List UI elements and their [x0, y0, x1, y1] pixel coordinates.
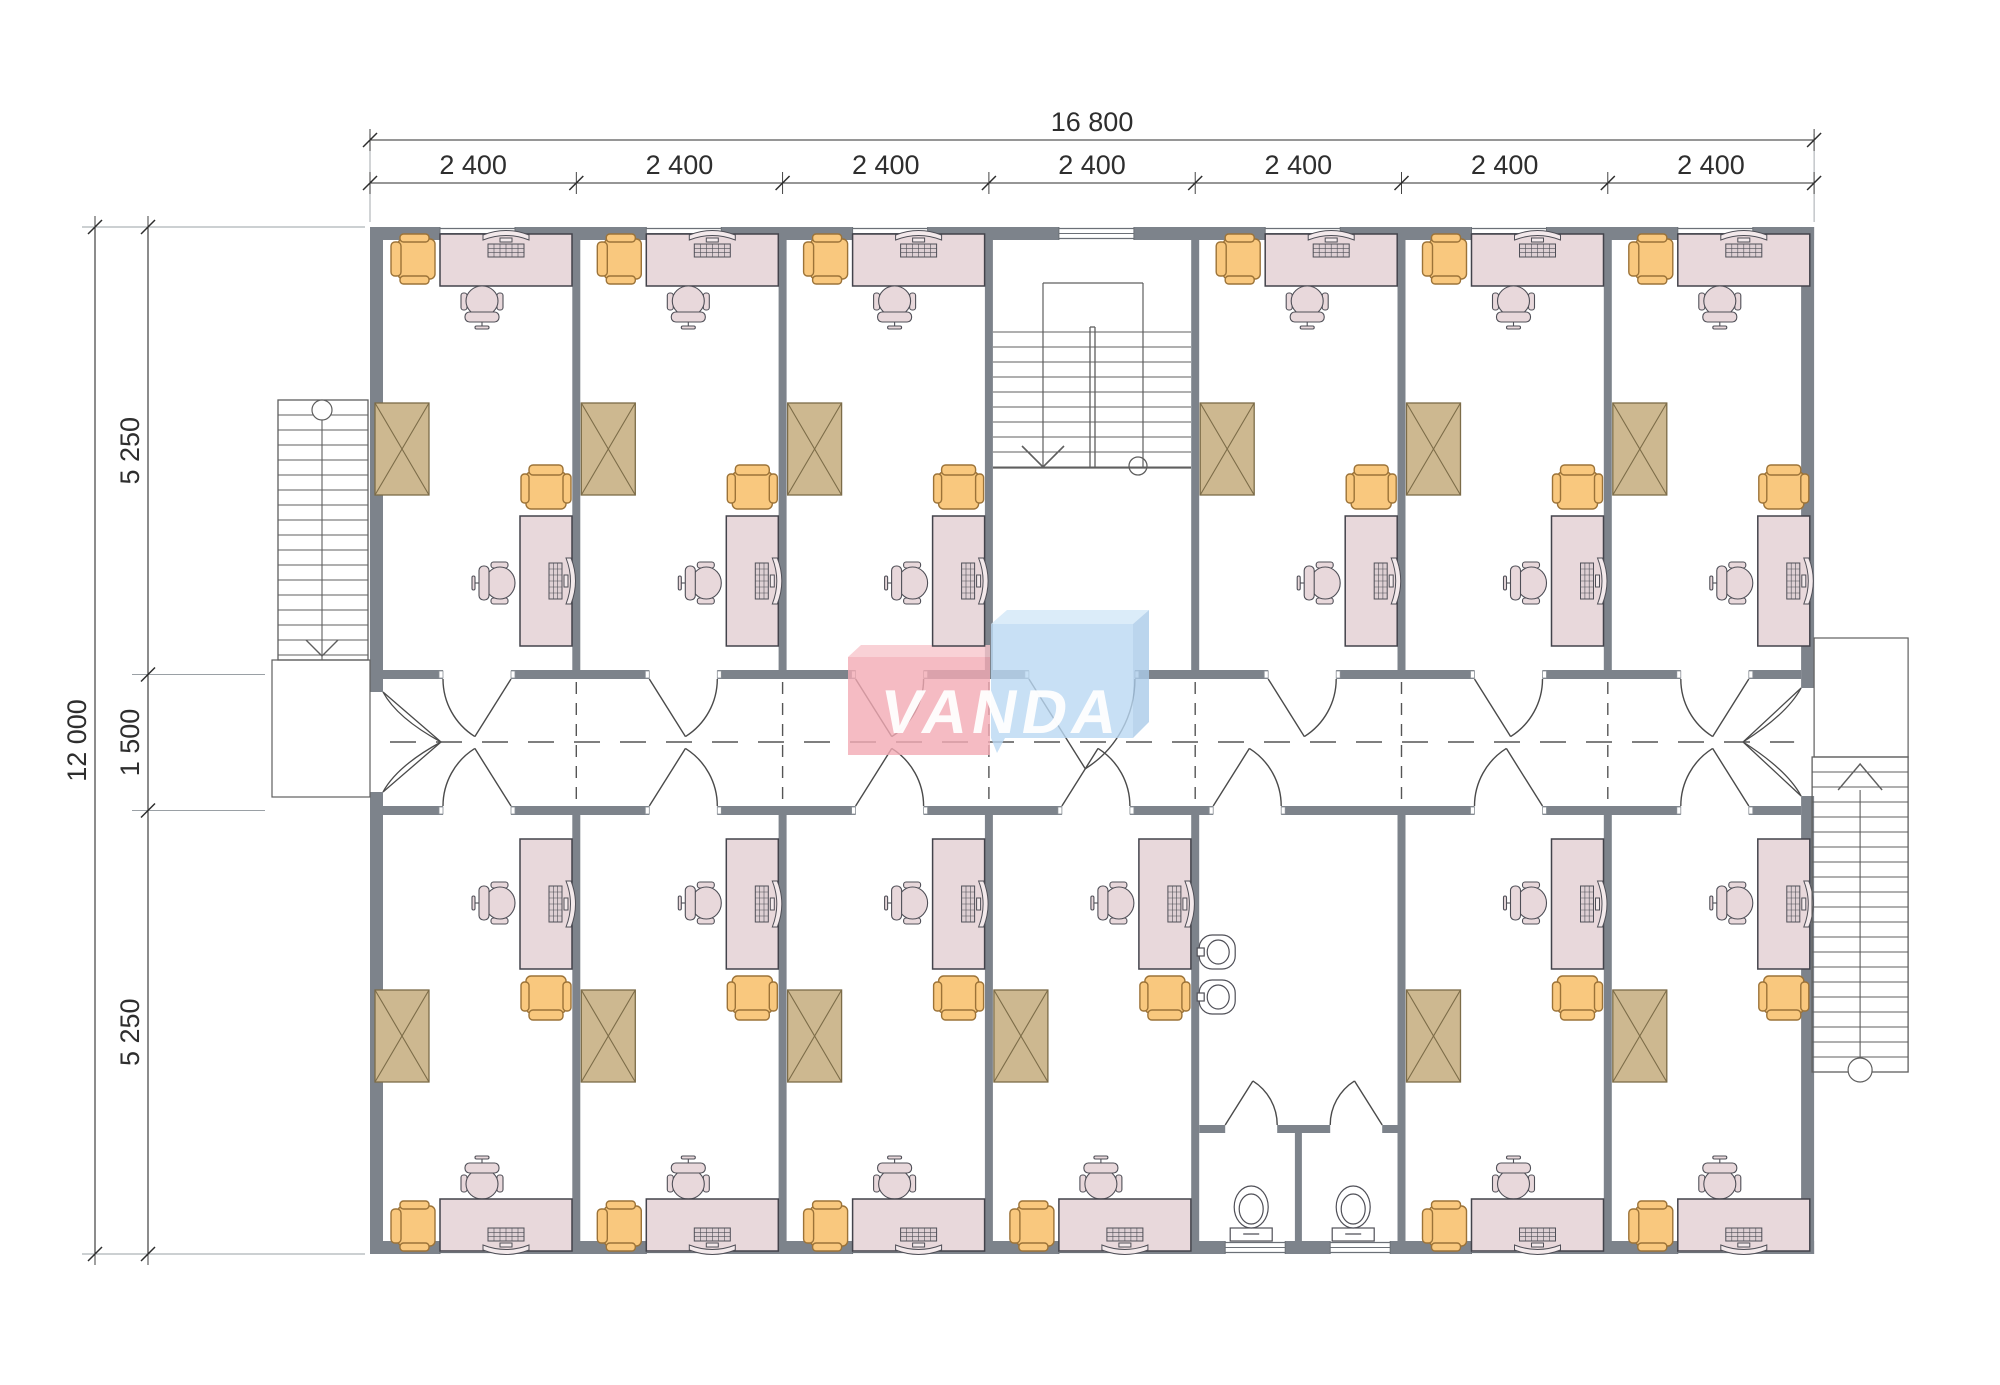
computer [1787, 558, 1814, 604]
armchair [1354, 465, 1388, 475]
armchair [942, 465, 976, 475]
office-chair [1504, 882, 1547, 924]
dimension-top-bays: 2 400 [852, 150, 920, 180]
armchair [1767, 1010, 1801, 1020]
computer [1389, 575, 1393, 587]
computer [1787, 881, 1814, 927]
door-swing [1506, 748, 1542, 806]
armchair [1216, 234, 1260, 284]
armchair [1629, 242, 1639, 276]
armchair [391, 234, 435, 284]
armchair [1636, 239, 1673, 279]
armchair [1767, 465, 1801, 475]
computer [706, 238, 718, 242]
armchair [727, 465, 777, 509]
office-chair [472, 562, 515, 604]
office-chair [1286, 286, 1328, 329]
armchair [1019, 1201, 1048, 1209]
stairwell-staircase [993, 283, 1191, 475]
armchair [1140, 982, 1148, 1011]
office-room-top-6 [1407, 231, 1608, 647]
computer [549, 558, 576, 604]
office-chair [1091, 882, 1134, 924]
armchair [400, 276, 429, 284]
washbasin [1197, 948, 1204, 956]
dimension-left-segments: 5 250 [115, 417, 145, 485]
armchair [1423, 242, 1433, 276]
armchair [1216, 242, 1226, 276]
computer [500, 1243, 512, 1247]
armchair [563, 474, 571, 503]
door-swing [1713, 748, 1749, 806]
corridor-wall-bottom [1471, 807, 1475, 814]
brand-logo-text: VANDA [875, 677, 1128, 746]
corridor-wall-bottom [511, 807, 515, 814]
dimension-left-total: 12 000 [62, 699, 92, 782]
office-chair [1504, 896, 1507, 910]
corridor-wall-top [717, 670, 855, 679]
office-chair [1710, 896, 1713, 910]
office-chair [1300, 326, 1314, 329]
computer [896, 231, 942, 258]
computer [755, 881, 782, 927]
armchair [1140, 976, 1190, 1020]
computer [564, 898, 568, 910]
armchair [1351, 472, 1391, 509]
computer [689, 231, 735, 258]
dimension-top-bays: 2 400 [1471, 150, 1539, 180]
computer [1802, 898, 1806, 910]
corridor-wall-top [1749, 670, 1801, 679]
corridor-wall-bottom [1209, 807, 1213, 814]
armchair [769, 474, 777, 503]
corridor-wall-bottom [1543, 806, 1681, 815]
door-swing [1475, 748, 1507, 806]
office-chair [1710, 882, 1753, 924]
door-swing [685, 748, 717, 806]
sanitary-room [1277, 1125, 1330, 1133]
office-chair [878, 312, 912, 322]
room-partitions [572, 815, 580, 1241]
office-chair [885, 562, 928, 604]
office-chair [885, 896, 888, 910]
corridor-wall-bottom [717, 806, 855, 815]
armchair [1388, 474, 1396, 503]
office-chair [475, 1156, 489, 1159]
armchair [1764, 472, 1804, 509]
office-chair [1297, 576, 1300, 590]
computer [1596, 575, 1600, 587]
door-swing [1249, 748, 1281, 806]
corridor-wall-top [511, 671, 515, 678]
office-chair [1504, 562, 1547, 604]
office-chair [461, 1156, 503, 1199]
office-chair [465, 312, 499, 322]
corridor-wall-bottom [1130, 806, 1213, 815]
office-chair [681, 326, 695, 329]
computer [706, 1243, 718, 1247]
door-swing [1268, 679, 1304, 737]
computer [1308, 231, 1354, 258]
door-swing [649, 748, 685, 806]
armchair [942, 1010, 976, 1020]
door-swing [1268, 679, 1336, 737]
door-swing [1225, 1081, 1253, 1125]
computer [1532, 1243, 1544, 1247]
armchair [727, 474, 735, 503]
armchair [1561, 465, 1595, 475]
armchair [1629, 234, 1673, 284]
computer [755, 558, 782, 604]
vanda-logo: VANDA [848, 610, 1149, 755]
dimension-top-total: 16 800 [1051, 107, 1134, 137]
armchair [804, 242, 814, 276]
door-swing [649, 679, 717, 737]
armchair [1553, 465, 1603, 509]
door-swing [443, 679, 475, 737]
corridor-wall-top [439, 671, 443, 678]
computer [549, 881, 576, 927]
vanda-logo [1133, 610, 1149, 738]
washbasin [1197, 993, 1204, 1001]
room-partitions [1191, 240, 1199, 670]
computer [770, 898, 774, 910]
armchair [934, 976, 984, 1020]
wardrobe [994, 990, 1048, 1082]
office-chair [678, 562, 721, 604]
armchair [400, 1243, 429, 1251]
armchair [727, 976, 777, 1020]
computer [977, 898, 981, 910]
computer [1802, 575, 1806, 587]
office-chair [1504, 576, 1507, 590]
armchair [1759, 474, 1767, 503]
office-chair [1290, 312, 1324, 322]
office-chair [678, 896, 681, 910]
door-swing [1098, 748, 1130, 806]
corridor-wall-bottom [1281, 806, 1474, 815]
armchair [1561, 1010, 1595, 1020]
vanda-logo [991, 610, 1149, 624]
office-chair [892, 566, 902, 600]
office-chair [472, 882, 515, 924]
armchair [1638, 276, 1667, 284]
computer [1581, 558, 1608, 604]
computer [1532, 238, 1544, 242]
armchair [1638, 1201, 1667, 1209]
computer [564, 575, 568, 587]
wardrobe [375, 990, 429, 1082]
door-swing [856, 748, 892, 806]
office-chair [1713, 326, 1727, 329]
office-chair [671, 312, 705, 322]
dimension-left-segments: 5 2501 5005 250 [115, 216, 155, 1265]
armchair [606, 1201, 635, 1209]
computer [483, 1228, 529, 1255]
door-swing [1681, 748, 1713, 806]
exterior-stair-left [312, 400, 332, 420]
vanda-logo [848, 645, 990, 657]
stair-start-marker [1129, 457, 1147, 475]
office-chair [1493, 286, 1535, 329]
armchair [1346, 465, 1396, 509]
door-swing [475, 748, 511, 806]
computer [1515, 1228, 1561, 1255]
armchair [400, 234, 429, 242]
armchair [597, 242, 607, 276]
office-chair [685, 886, 695, 920]
armchair [1423, 1209, 1433, 1243]
door-swing [1330, 1081, 1354, 1125]
dimension-top-total: 16 800 [363, 107, 1821, 151]
armchair [1759, 465, 1809, 509]
office-chair [1710, 562, 1753, 604]
armchair [1638, 234, 1667, 242]
office-room-top-7 [1613, 231, 1814, 647]
office-chair [1511, 886, 1521, 920]
armchair [1801, 982, 1809, 1011]
door-swing [1304, 679, 1336, 737]
dimension-top-bays: 2 400 [1058, 150, 1126, 180]
dimension-left-segments: 5 250 [115, 998, 145, 1066]
office-chair [1699, 286, 1741, 329]
corridor-wall-top [383, 670, 443, 679]
dimension-top-bays: 2 400 [1677, 150, 1745, 180]
armchair [732, 472, 772, 509]
office-chair [1703, 312, 1737, 322]
window [1059, 227, 1134, 240]
armchair [1432, 276, 1461, 284]
office-chair [1497, 1163, 1531, 1173]
armchair [1182, 982, 1190, 1011]
armchair [526, 472, 566, 509]
door-swing [1225, 1081, 1277, 1125]
exterior-stair-right [1838, 764, 1882, 790]
washbasin [1197, 980, 1235, 1014]
corridor-wall-top [1677, 671, 1681, 678]
exterior-stair-left [272, 660, 370, 797]
computer [1374, 558, 1401, 604]
armchair [1423, 234, 1467, 284]
armchair [1759, 976, 1809, 1020]
armchair [521, 982, 529, 1011]
toilet [1230, 1186, 1272, 1241]
armchair [526, 976, 566, 1013]
office-chair [1511, 566, 1521, 600]
office-chair [1493, 1156, 1535, 1199]
office-chair [1497, 312, 1531, 322]
armchair [1629, 1201, 1673, 1251]
wardrobe [788, 990, 842, 1082]
corridor-wall-bottom [1058, 807, 1062, 814]
door-swing [1681, 679, 1749, 737]
office-chair [685, 566, 695, 600]
computer [962, 558, 989, 604]
armchair [1638, 1243, 1667, 1251]
office-chair [1098, 886, 1108, 920]
sanitary-room [1199, 1125, 1225, 1133]
armchair [804, 1209, 814, 1243]
office-chair [885, 576, 888, 590]
door-swing [649, 679, 685, 737]
door-swing [443, 748, 475, 806]
office-chair [1304, 566, 1314, 600]
office-chair [1507, 1156, 1521, 1159]
computer [1581, 881, 1608, 927]
door-swing [1681, 679, 1713, 737]
office-chair [667, 1156, 709, 1199]
armchair [597, 1209, 607, 1243]
corridor-wall-top [717, 671, 721, 678]
computer [913, 238, 925, 242]
office-room-bottom-1 [375, 839, 576, 1255]
office-chair [1703, 1163, 1737, 1173]
armchair [1423, 1201, 1467, 1251]
corridor-wall-bottom [924, 806, 1062, 815]
corridor-wall-bottom [717, 807, 721, 814]
computer [913, 1243, 925, 1247]
office-chair [667, 286, 709, 329]
wardrobe [788, 403, 842, 495]
armchair [1553, 976, 1603, 1020]
door-swing [443, 748, 511, 806]
door-swing [1475, 679, 1511, 737]
armchair [813, 234, 842, 242]
office-chair [479, 886, 489, 920]
corridor-wall-top [1336, 671, 1340, 678]
corridor-wall-bottom [1543, 807, 1547, 814]
corridor-wall-top [1543, 670, 1681, 679]
corridor-wall-bottom [1749, 806, 1801, 815]
exterior-stair-right [1812, 638, 1908, 1082]
computer [770, 575, 774, 587]
room-partitions [572, 240, 580, 670]
armchair [735, 465, 769, 475]
armchair [1759, 982, 1767, 1011]
corridor-wall-top [1135, 670, 1268, 679]
room-partitions [1398, 240, 1406, 670]
corridor-wall-top [1749, 671, 1753, 678]
office-room-bottom-2 [581, 839, 782, 1255]
armchair [391, 1201, 435, 1251]
armchair [391, 242, 401, 276]
armchair [1010, 1201, 1054, 1251]
computer [1119, 1243, 1131, 1247]
door-swing [649, 748, 717, 806]
armchair [939, 472, 979, 509]
door-swing [443, 679, 511, 737]
room-partitions [1604, 240, 1612, 670]
door-swing [475, 679, 511, 737]
armchair [813, 1243, 842, 1251]
office-chair [888, 1156, 902, 1159]
office-chair [1699, 1156, 1741, 1199]
corridor-wall-bottom [1130, 807, 1134, 814]
armchair [732, 976, 772, 1013]
armchair [398, 1206, 435, 1246]
office-chair [678, 576, 681, 590]
exterior-stair-right [1814, 638, 1908, 757]
dimension-top-bays: 2 400 [439, 150, 507, 180]
door-swing [1713, 679, 1749, 737]
dimension-top-bays: 2 400 [646, 150, 714, 180]
office-chair [475, 326, 489, 329]
armchair [934, 474, 942, 503]
armchair [1223, 239, 1260, 279]
office-chair [892, 886, 902, 920]
armchair [804, 1201, 848, 1251]
armchair [391, 1209, 401, 1243]
armchair [529, 465, 563, 475]
door-swing [1475, 679, 1543, 737]
sanitary-room [1382, 1125, 1397, 1133]
office-room-bottom-3 [788, 839, 989, 1255]
armchair [1430, 239, 1467, 279]
computer [1596, 898, 1600, 910]
armchair [1629, 1209, 1639, 1243]
office-chair [461, 286, 503, 329]
computer [1183, 898, 1187, 910]
door-swing [1062, 748, 1098, 806]
armchair [813, 1201, 842, 1209]
room-partitions [985, 240, 993, 670]
armchair [606, 276, 635, 284]
office-chair [885, 882, 928, 924]
corridor-wall-bottom [1281, 807, 1285, 814]
dimension-top-bays: 2 4002 4002 4002 4002 4002 4002 400 [363, 150, 1821, 194]
office-chair [678, 882, 721, 924]
office-chair [1094, 1156, 1108, 1159]
room-partitions [779, 240, 787, 670]
corridor-wall-top [511, 670, 649, 679]
armchair [1010, 1209, 1020, 1243]
window [1330, 1241, 1390, 1254]
armchair [934, 465, 984, 509]
door-swing [856, 748, 924, 806]
computer [483, 231, 529, 258]
exterior-stair-right [1848, 1058, 1872, 1082]
office-chair [1717, 566, 1727, 600]
armchair [1801, 474, 1809, 503]
corridor-wall-top [1471, 671, 1475, 678]
dimension-left-total: 12 000 [62, 216, 102, 1265]
office-room-top-2 [581, 231, 782, 647]
armchair [1145, 976, 1185, 1013]
exterior-stair-left [272, 400, 370, 797]
armchair [529, 1010, 563, 1020]
armchair [604, 239, 641, 279]
armchair [398, 239, 435, 279]
armchair [521, 465, 571, 509]
corridor-wall-bottom [852, 807, 856, 814]
office-chair [874, 1156, 916, 1199]
armchair [1019, 1243, 1048, 1251]
door-swing [892, 748, 924, 806]
armchair [1430, 1206, 1467, 1246]
floor-plan-canvas: VANDA16 8002 4002 4002 4002 4002 4002 40… [0, 0, 2000, 1380]
door-swing [1062, 748, 1130, 806]
office-room-bottom-7 [1613, 839, 1814, 1255]
door-swing [1213, 748, 1281, 806]
armchair [1432, 234, 1461, 242]
office-chair [1297, 562, 1340, 604]
office-chair [1507, 326, 1521, 329]
armchair [521, 976, 571, 1020]
computer [1738, 238, 1750, 242]
armchair [1225, 234, 1254, 242]
armchair [811, 239, 848, 279]
armchair [1432, 1201, 1461, 1209]
